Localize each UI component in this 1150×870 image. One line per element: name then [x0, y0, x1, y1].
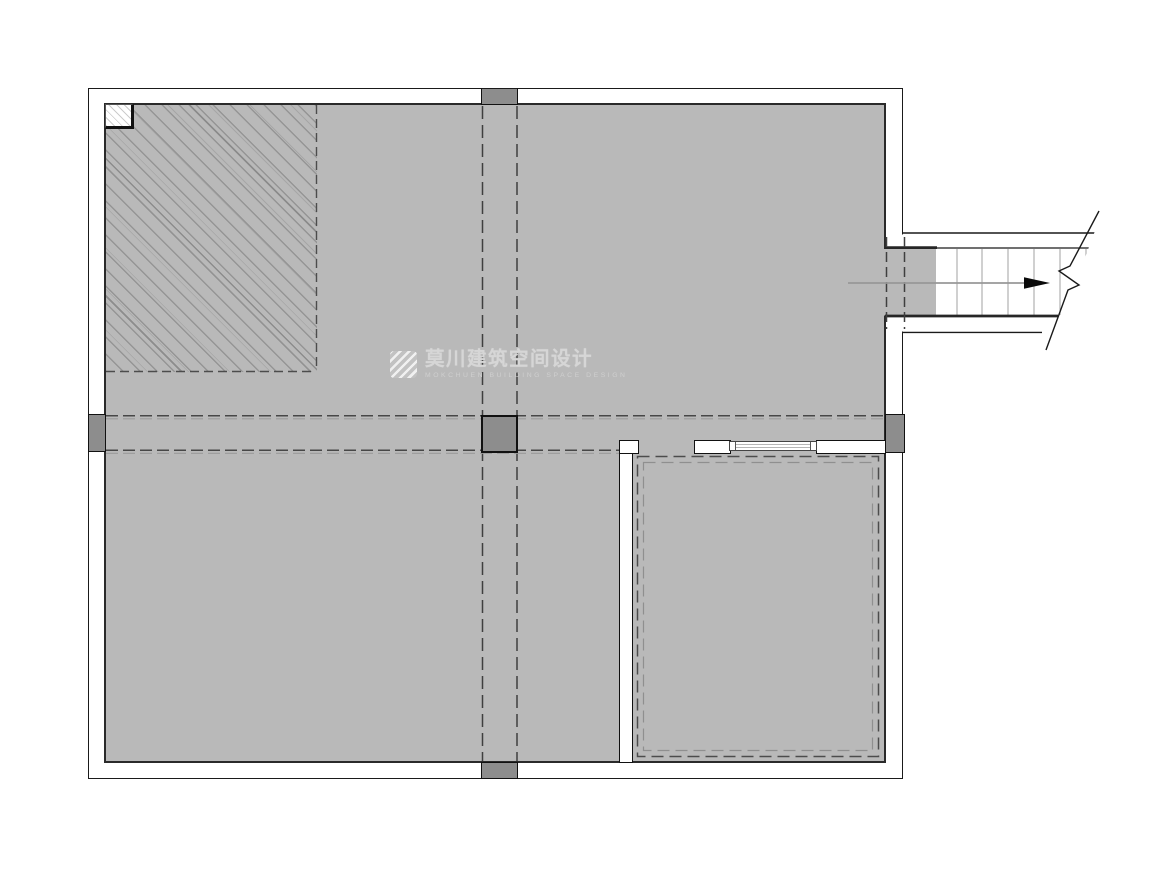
- window-sliding-track: [729, 441, 817, 451]
- partition-wall-segment-a: [694, 440, 731, 454]
- window-tab-right: [810, 442, 816, 450]
- column-top-wall: [481, 88, 518, 105]
- partition-wall-segment-b: [816, 440, 886, 454]
- watermark: 莫川建筑空间设计 MOKCHUEN BUILDING SPACE DESIGN: [390, 349, 650, 385]
- floorplan-canvas: 莫川建筑空间设计 MOKCHUEN BUILDING SPACE DESIGN: [0, 0, 1150, 870]
- stair-tread-lines: [957, 249, 1086, 315]
- column-right-wall: [885, 414, 905, 453]
- watermark-title: 莫川建筑空间设计: [425, 349, 628, 370]
- hatched-void-area: [106, 105, 317, 372]
- column-left-wall: [88, 414, 106, 452]
- watermark-texts: 莫川建筑空间设计 MOKCHUEN BUILDING SPACE DESIGN: [425, 349, 628, 380]
- column-center: [481, 415, 518, 453]
- column-bottom-wall: [481, 762, 518, 779]
- partition-wall-cap: [619, 440, 639, 454]
- break-line-mask: [1048, 207, 1150, 356]
- mokchuen-logo-icon: [390, 351, 417, 378]
- watermark-subtitle: MOKCHUEN BUILDING SPACE DESIGN: [425, 371, 628, 380]
- stair-direction-arrow: [1024, 277, 1050, 289]
- break-line: [1046, 211, 1099, 350]
- partition-wall-vertical: [619, 440, 633, 763]
- window-tab-left: [730, 442, 736, 450]
- corner-shaft-box: [105, 104, 134, 129]
